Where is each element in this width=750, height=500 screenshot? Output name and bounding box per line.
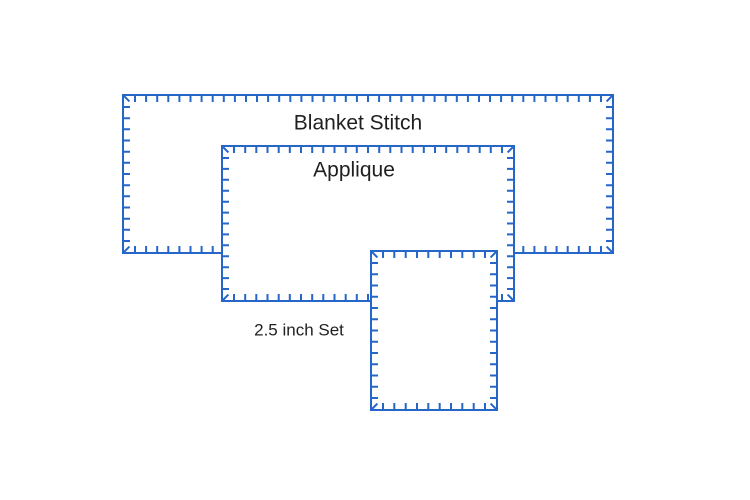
- stitch-diagram: [0, 0, 750, 500]
- stitch-rect-outline: [371, 251, 497, 410]
- label-applique: Applique: [313, 160, 395, 181]
- diagram-canvas: Blanket Stitch Applique 2.5 inch Set: [0, 0, 750, 500]
- label-blanket-stitch: Blanket Stitch: [294, 113, 422, 134]
- label-size-set: 2.5 inch Set: [254, 322, 344, 339]
- blanket-stitch-template-small: [371, 251, 497, 410]
